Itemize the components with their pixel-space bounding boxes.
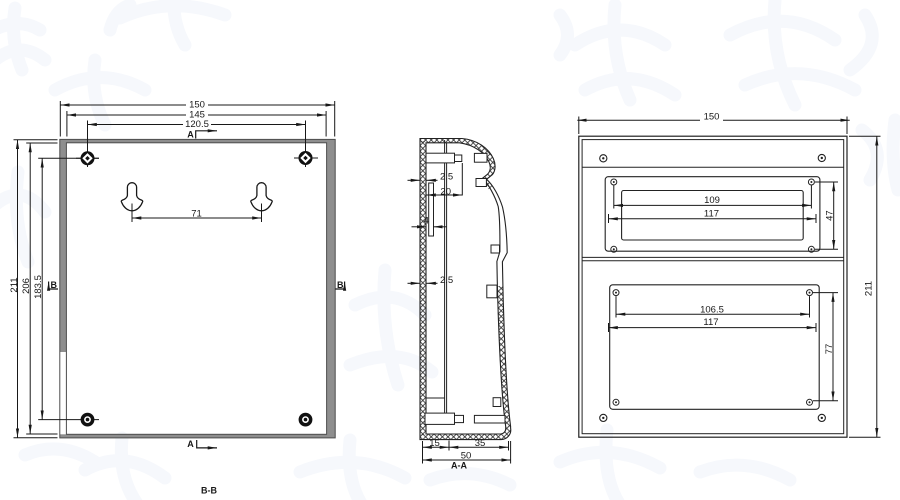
svg-text:2.5: 2.5: [440, 275, 453, 286]
svg-text:A-A: A-A: [451, 460, 467, 470]
svg-text:2.5: 2.5: [440, 171, 453, 182]
svg-text:211: 211: [9, 277, 20, 292]
svg-text:206: 206: [21, 278, 32, 294]
svg-text:47: 47: [824, 210, 835, 221]
svg-text:4: 4: [424, 216, 429, 227]
svg-text:77: 77: [824, 344, 835, 355]
svg-text:106.5: 106.5: [700, 305, 724, 316]
svg-text:71: 71: [191, 209, 202, 220]
svg-text:117: 117: [704, 208, 719, 219]
svg-text:211: 211: [864, 281, 875, 296]
svg-text:109: 109: [704, 195, 720, 206]
svg-text:B: B: [337, 280, 344, 290]
svg-text:183.5: 183.5: [33, 275, 44, 299]
svg-text:B: B: [51, 280, 58, 290]
svg-text:A: A: [187, 439, 194, 449]
svg-text:117: 117: [703, 317, 718, 328]
svg-text:B-B: B-B: [201, 486, 217, 496]
svg-text:20: 20: [440, 186, 451, 197]
svg-text:35: 35: [475, 438, 486, 449]
svg-text:A: A: [187, 129, 194, 139]
svg-text:15: 15: [429, 438, 440, 449]
svg-text:150: 150: [704, 112, 720, 123]
